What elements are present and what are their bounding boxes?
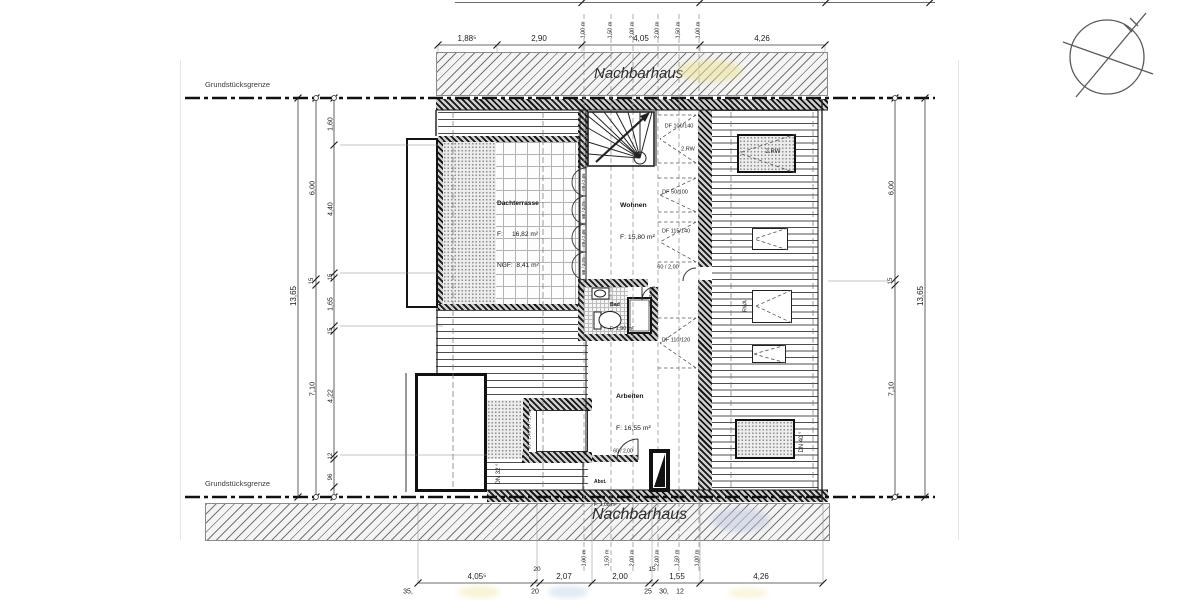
roof-pitch-label: DN 32 ° [496,463,502,484]
door-size-label: 60 / 2,00 [657,265,678,271]
watermark-smudge-top [678,60,742,82]
escape-route-label: 2.RW [766,149,781,155]
dimension-label: 1,60 [328,117,335,131]
dimension-label: 12 [328,453,334,460]
room-area: F: 15,80 m² [620,233,655,244]
dimension-label: 4,40 [328,202,335,216]
dimension-label: 15 [328,328,334,335]
room-area-ngf: NGF: 8,41 m² [497,261,539,271]
dimension-label: 4,22 [328,389,335,403]
dimension-label: 15 [648,567,655,574]
neighbor-label-top: Nachbarhaus [594,65,683,82]
room-label-abst: Abst. F: 1,08 m² [594,463,617,525]
door-size-label: 60 / 2,00 [613,450,632,455]
boundary-label-top: Grundstücksgrenze [205,80,270,89]
roof-window-label: DF 50/100 [662,190,688,196]
dimension-label: 13,65 [290,286,298,306]
watermark-smudge-dim3 [728,588,768,598]
dimension-label: 12 [676,589,684,596]
dimension-label: 15 [328,274,334,281]
smoke-vent-label: RWA [744,300,749,311]
dimension-label: 1,88⁵ [458,35,477,43]
watermark-smudge-dim1 [458,586,500,598]
dimension-label: 4,26 [753,573,769,581]
dimension-label: 20 [533,567,540,574]
room-label-arbeiten: Arbeiten F: 16,55 m² [616,371,651,455]
height-contour-label: 2,00 m [630,550,636,567]
watermark-smudge-bottom [712,508,770,532]
dimension-label: 20 [531,589,539,596]
chimney [649,449,670,492]
dimension-label: 1,65 [328,297,335,311]
room-area: F: 16,82 m² [497,230,539,240]
dimension-label: 15 [888,278,894,285]
height-contour-label: 2,00 m [655,22,661,39]
roof-window-label: DF 100/140 [665,124,694,130]
door-size-label: 88 / 2,05 [582,173,587,191]
height-contour-label: 1,50 m [675,550,681,567]
room-area: F: 1,90 m² [610,325,634,333]
height-contour-label: 1,50 m [605,550,611,567]
height-contour-label: 2,00 m [655,550,661,567]
dimension-label: 4,05⁵ [468,573,487,581]
door-size-label: 88 / 2,05 [582,229,587,247]
room-name: Arbeiten [616,392,651,403]
room-name: Wohnen [620,201,655,212]
door-size-label: 60 / 2,05 [649,288,654,306]
dimension-label: 6,00 [308,181,316,196]
dimension-label: 7,10 [887,382,895,397]
room-label-wohnen: Wohnen F: 15,80 m² [620,180,655,264]
room-name: Abst. [594,479,617,487]
stairs [588,112,654,166]
dimension-label: 7,10 [308,382,316,397]
room-area: F: 1,08 m² [594,502,617,510]
room-name: Bad [610,301,634,309]
door-size-label: 88 / 2,05 [582,201,587,219]
height-contour-label: 1,00 m [695,550,701,567]
floor-plan-canvas: Grundstücksgrenze Grundstücksgrenze Nach… [0,0,1200,600]
dimension-label: 96 [328,474,334,481]
room-area: F: 16,55 m² [616,424,651,435]
dimension-label: 2,00 [612,573,628,581]
dimension-label: 30, [659,589,669,596]
height-contour-label: 1,00 m [582,550,588,567]
room-label-bad: Bad F: 1,90 m² [610,285,634,350]
room-label-dachterrasse: Dachterrasse F: 16,82 m² NGF: 8,41 m² [497,179,539,291]
escape-route-label: 2.RW [681,147,695,153]
roof-window-label: DF 115/140 [662,229,690,235]
door-size-label: 88 / 2,05 [582,257,587,275]
dimension-label: 1,55 [669,573,685,581]
dimension-label: 25 [644,589,652,596]
height-contour-label: 1,00 m [581,22,587,39]
window-size-label: 80 / 1,40 80 / 1,40 [529,411,534,450]
boundary-label-bottom: Grundstücksgrenze [205,479,270,488]
height-contour-label: 1,00 m [696,22,702,39]
dimension-label: 4,26 [754,35,770,43]
dimension-label: 6,00 [887,181,895,196]
room-name: Dachterrasse [497,199,539,209]
dimension-label: 2,07 [556,573,572,581]
dimension-label: 2,90 [531,35,547,43]
north-arrow-icon [1063,13,1153,97]
roof-window-label: DF 110/120 [662,338,690,344]
height-contour-label: 1,50 m [676,22,682,39]
dimension-label: 13,65 [917,286,925,306]
dimension-label: 4,05 [633,35,649,43]
height-contour-label: 1,50 m [608,22,614,39]
dimension-label: 15 [309,278,315,285]
watermark-smudge-dim2 [548,586,588,598]
dimension-label: 35, [403,589,413,596]
roof-pitch-label: DN 40 ° [799,431,805,452]
